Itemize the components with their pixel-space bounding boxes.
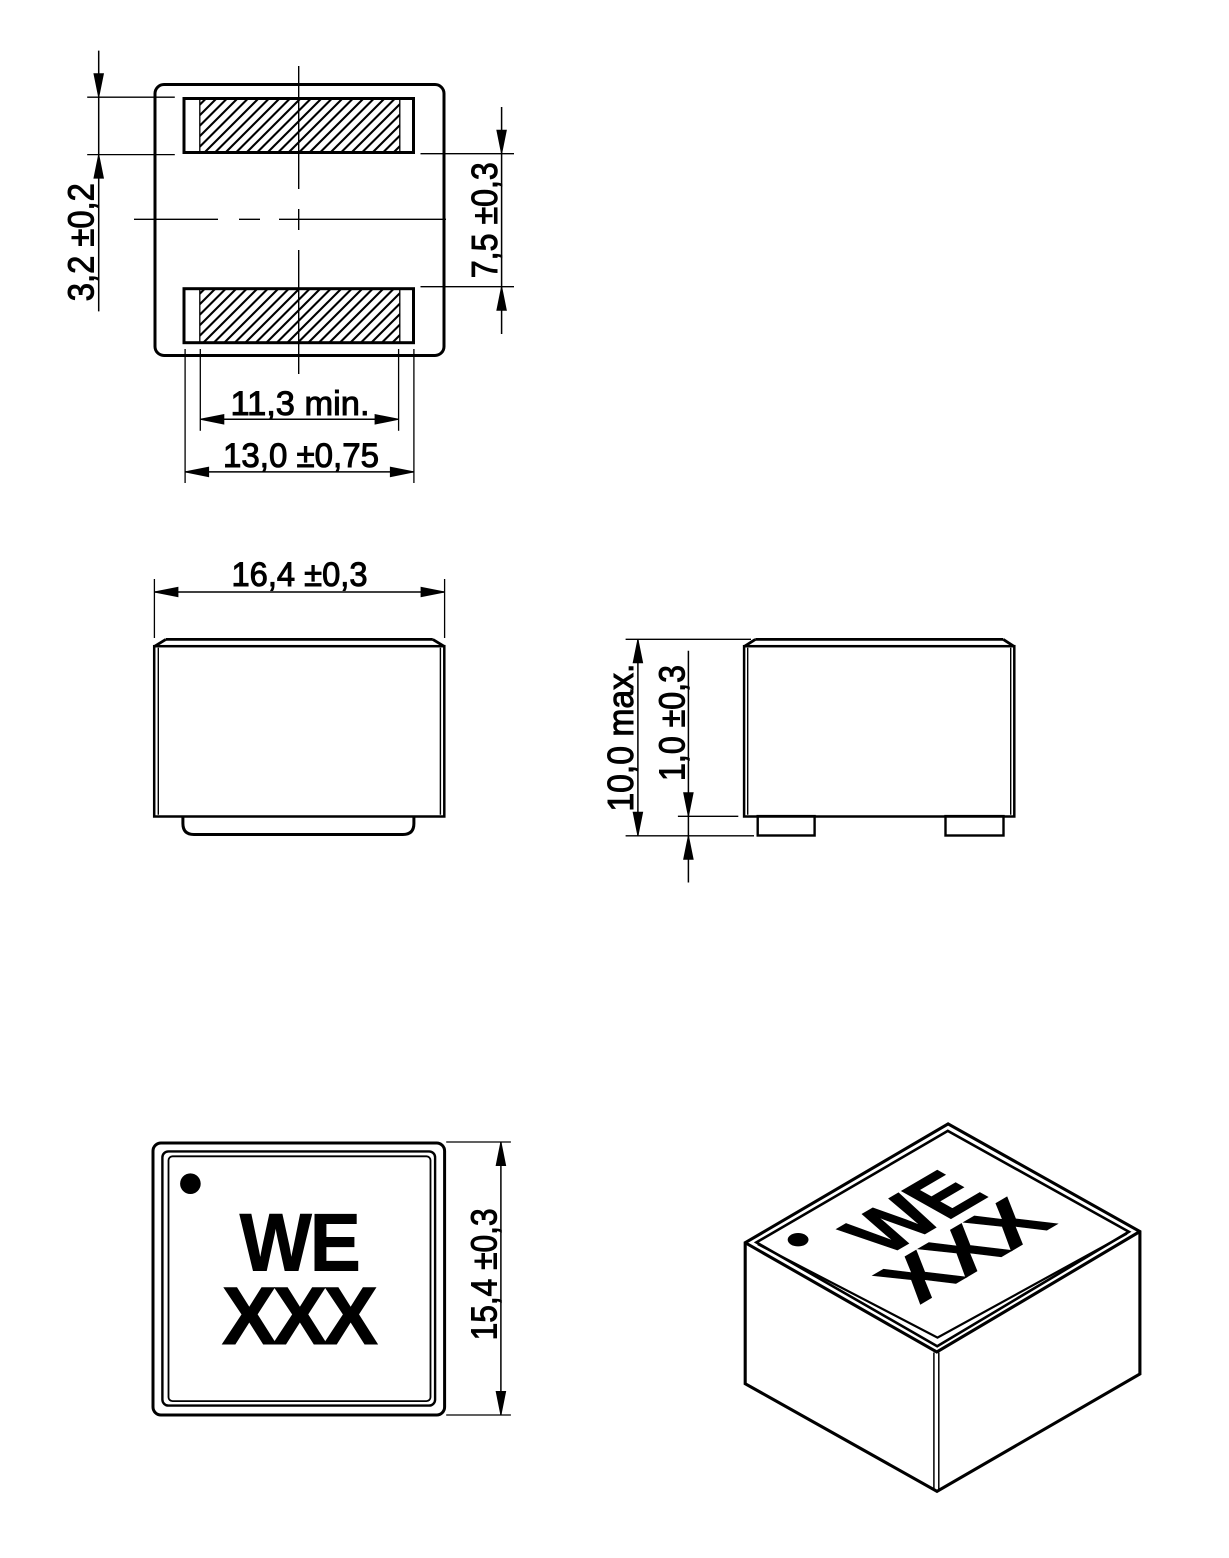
svg-text:XXX: XXX	[222, 1271, 377, 1362]
svg-text:16,4 ±0,3: 16,4 ±0,3	[232, 556, 368, 594]
svg-text:15,4 ±0,3: 15,4 ±0,3	[464, 1208, 505, 1340]
svg-text:7,5 ±0,3: 7,5 ±0,3	[464, 162, 505, 278]
svg-text:10,0 max.: 10,0 max.	[600, 664, 641, 812]
svg-text:1,0 ±0,3: 1,0 ±0,3	[652, 665, 693, 781]
svg-text:3,2 ±0,2: 3,2 ±0,2	[61, 183, 102, 301]
svg-text:11,3 min.: 11,3 min.	[231, 385, 370, 423]
svg-text:13,0 ±0,75: 13,0 ±0,75	[223, 437, 379, 475]
